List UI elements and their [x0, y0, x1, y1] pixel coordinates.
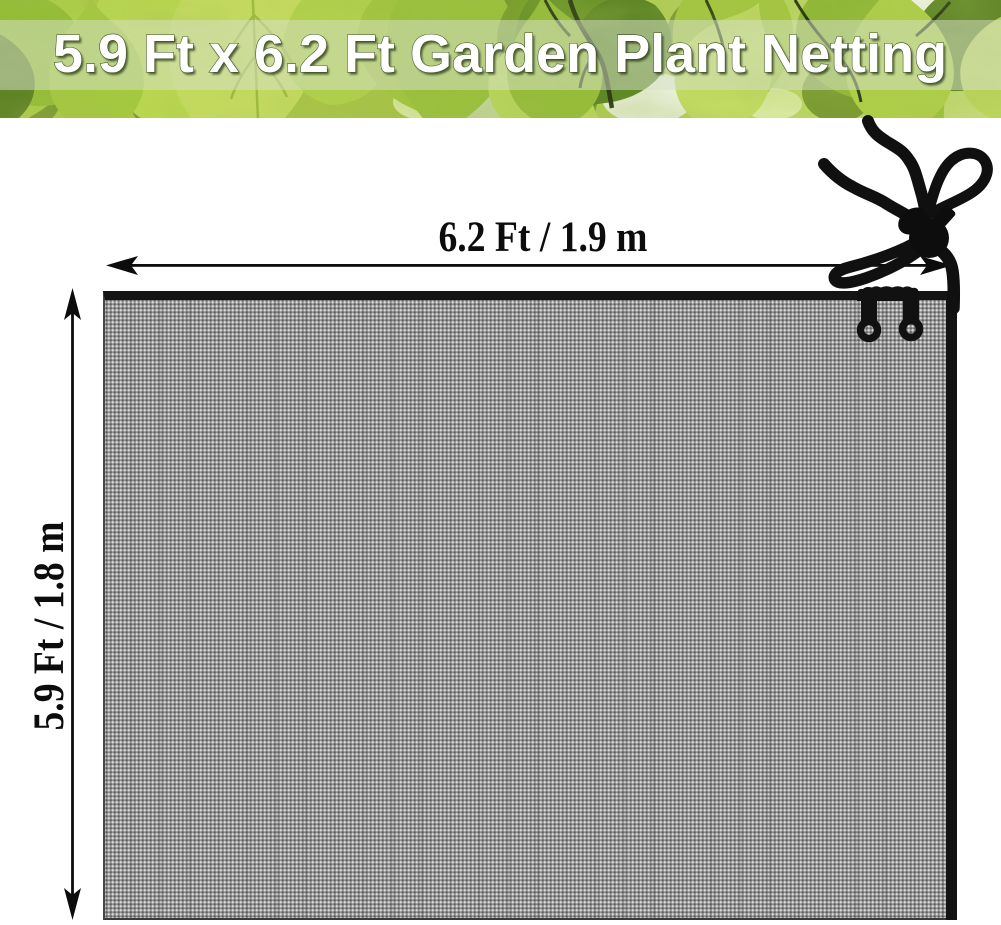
svg-text:6.2 Ft / 1.9 m: 6.2 Ft / 1.9 m — [439, 214, 648, 261]
svg-text:5.9 Ft / 1.8 m: 5.9 Ft / 1.8 m — [26, 521, 73, 730]
